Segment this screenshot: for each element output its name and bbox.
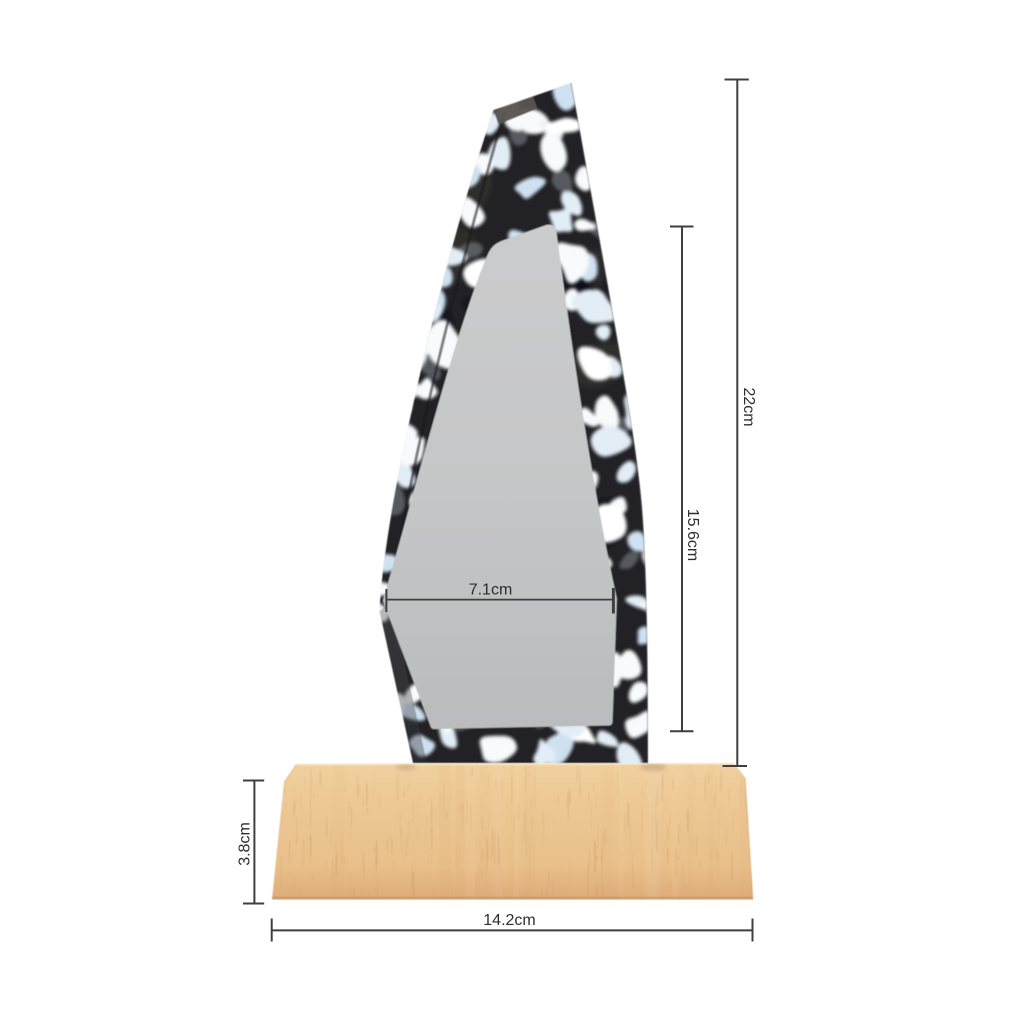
svg-text:15.6cm: 15.6cm <box>684 509 701 561</box>
svg-text:22cm: 22cm <box>740 387 757 426</box>
svg-text:3.8cm: 3.8cm <box>236 822 253 866</box>
svg-text:7.1cm: 7.1cm <box>469 582 513 599</box>
svg-text:14.2cm: 14.2cm <box>483 912 535 929</box>
